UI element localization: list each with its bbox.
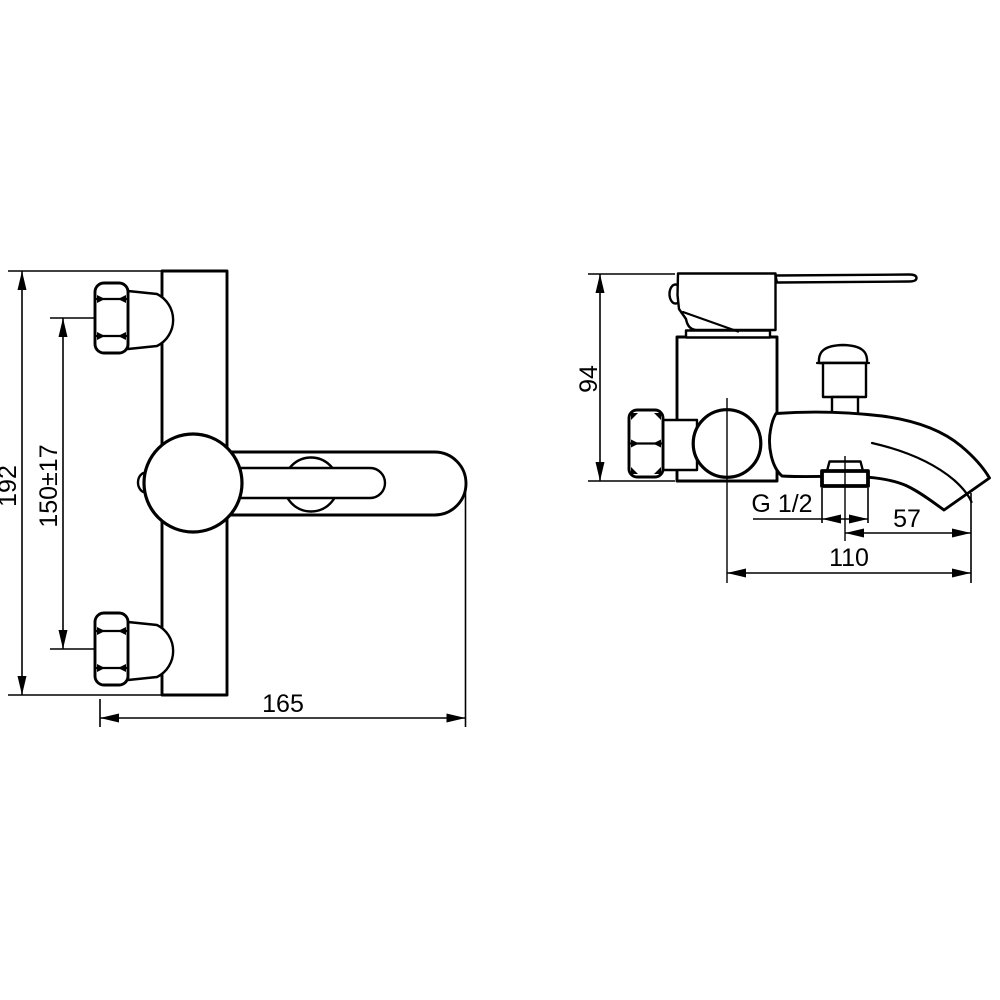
front-bottom-connector [128,622,173,680]
nut-outline [95,283,128,353]
dimension-outlet-thread: G 1/2 [751,488,868,524]
arrow-down-icon [59,630,68,649]
front-body-circle [144,434,242,532]
arrow-up-icon [18,271,27,290]
front-bottom-nut [95,613,128,685]
diverter-knob [817,345,869,415]
diverter-cylinder [823,363,866,397]
arrow-left-icon [727,569,746,578]
side-handle [678,274,776,331]
arrow-right-icon [952,569,971,578]
side-collar [686,331,770,338]
arrow-right-icon [849,515,868,524]
dimension-label: 192 [0,465,22,507]
nut-outline [95,613,128,685]
dimension-label: 110 [829,544,869,572]
dimension-spout-reach: 110 [727,544,971,578]
dimension-label: 57 [893,505,921,533]
side-lever [776,275,917,283]
arrow-down-icon [18,676,27,695]
arrow-down-icon [596,462,605,481]
arrow-left-icon [100,714,119,723]
dimension-total-width: 165 [100,487,466,727]
dimension-label: G 1/2 [751,490,812,518]
diverter-cap [819,345,867,363]
front-top-connector [128,291,173,349]
dimension-label: 150±17 [35,444,63,527]
front-view [95,271,466,695]
arrow-right-icon [952,529,971,538]
dimension-label: 94 [575,365,603,393]
front-top-nut [95,283,128,353]
arrow-left-icon [822,515,841,524]
arrow-up-icon [59,318,68,337]
technical-drawing-page: 192 150±17 165 94 [0,0,1000,1000]
side-nut [629,410,663,477]
dimension-hole-spacing: 150±17 [35,318,95,649]
arrow-left-icon [845,529,864,538]
bath-mixer-technical-drawing: 192 150±17 165 94 [0,0,1000,1000]
front-handle-slot [228,468,385,498]
arrow-up-icon [596,274,605,293]
dimension-label: 165 [262,690,304,718]
dimension-outlet-to-tip: 57 [845,505,971,538]
side-view [629,274,990,511]
arrow-right-icon [447,714,466,723]
